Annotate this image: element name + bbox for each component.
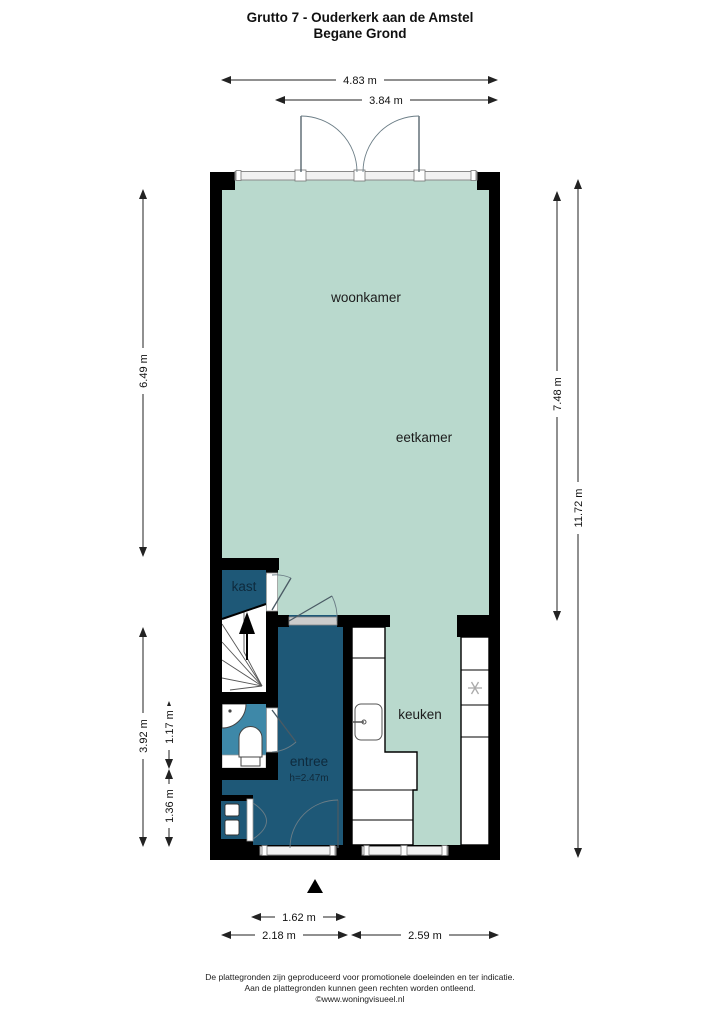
hall-north-wall-left: [278, 615, 289, 627]
room-label-entree-height: h=2.47m: [289, 773, 328, 784]
svg-text:7.48 m: 7.48 m: [552, 377, 564, 411]
double-entry-doors: [301, 116, 419, 172]
meter-closet-door: [247, 799, 253, 841]
toilet-north-wall: [210, 692, 278, 704]
svg-text:1.62 m: 1.62 m: [282, 912, 316, 924]
dimension-top-inner-width: 3.84 m: [276, 94, 497, 107]
right-outer-wall: [489, 172, 500, 860]
toilet-south-wall: [210, 768, 278, 780]
meter-box: [225, 804, 239, 816]
appliance-column: [461, 637, 489, 845]
floorplan-page: Grutto 7 - Ouderkerk aan de Amstel Began…: [0, 0, 720, 1018]
copyright-line: ©www.woningvisueel.nl: [0, 994, 720, 1005]
left-outer-wall: [210, 172, 222, 860]
dimension-left-height: 6.49 m: [137, 190, 151, 556]
top-left-corner: [210, 172, 235, 190]
dimension-toilet-height: 1.17 m: [163, 702, 177, 768]
kitchen-west-wall: [343, 615, 352, 845]
svg-text:4.83 m: 4.83 m: [343, 75, 377, 87]
kitchen-sink-icon: [352, 704, 382, 740]
dimension-bottom-left-width: 2.18 m: [222, 929, 347, 942]
dimension-right-inner-height: 7.48 m: [551, 192, 565, 620]
dimension-bottom-right-width: 2.59 m: [352, 929, 498, 942]
room-label-keuken: keuken: [398, 707, 442, 722]
page-title: Grutto 7 - Ouderkerk aan de Amstel: [0, 10, 720, 26]
toilet-icon: [239, 727, 262, 767]
svg-text:2.59 m: 2.59 m: [408, 930, 442, 942]
bottom-outer-wall: [210, 845, 500, 860]
svg-text:6.49 m: 6.49 m: [138, 354, 150, 388]
north-arrow-icon: [307, 879, 323, 893]
svg-text:1.17 m: 1.17 m: [164, 710, 176, 744]
room-label-eetkamer: eetkamer: [396, 430, 453, 445]
disclaimer-line-1: De plattegronden zijn geproduceerd voor …: [0, 972, 720, 983]
dimension-door-width: 1.62 m: [252, 911, 345, 924]
meter-box: [225, 820, 239, 835]
svg-text:3.84 m: 3.84 m: [369, 95, 403, 107]
disclaimer-line-2: Aan de plattegronden kunnen geen rechten…: [0, 983, 720, 994]
sink-drain: [228, 709, 231, 712]
room-label-woonkamer: woonkamer: [330, 290, 401, 305]
kitchen-northeast-wall: [457, 615, 500, 637]
closet-east-wall-upper: [266, 558, 278, 575]
dimension-hall-height: 1.36 m: [163, 770, 177, 846]
svg-text:1.36 m: 1.36 m: [164, 789, 176, 823]
bottom-window-left: [260, 847, 336, 856]
dimension-top-width: 4.83 m: [222, 74, 497, 87]
room-label-entree: entree: [290, 754, 328, 769]
page-subtitle: Begane Grond: [0, 26, 720, 42]
svg-text:2.18 m: 2.18 m: [262, 930, 296, 942]
floor-plan-drawing: woonkamer eetkamer keuken kast entree h=…: [0, 0, 720, 1018]
svg-text:11.72 m: 11.72 m: [573, 489, 585, 528]
dimension-right-total-height: 11.72 m: [572, 180, 586, 857]
top-right-corner: [477, 172, 500, 190]
dimension-lower-left-height: 3.92 m: [137, 628, 151, 846]
room-label-kast: kast: [232, 579, 257, 594]
svg-text:3.92 m: 3.92 m: [138, 719, 150, 753]
